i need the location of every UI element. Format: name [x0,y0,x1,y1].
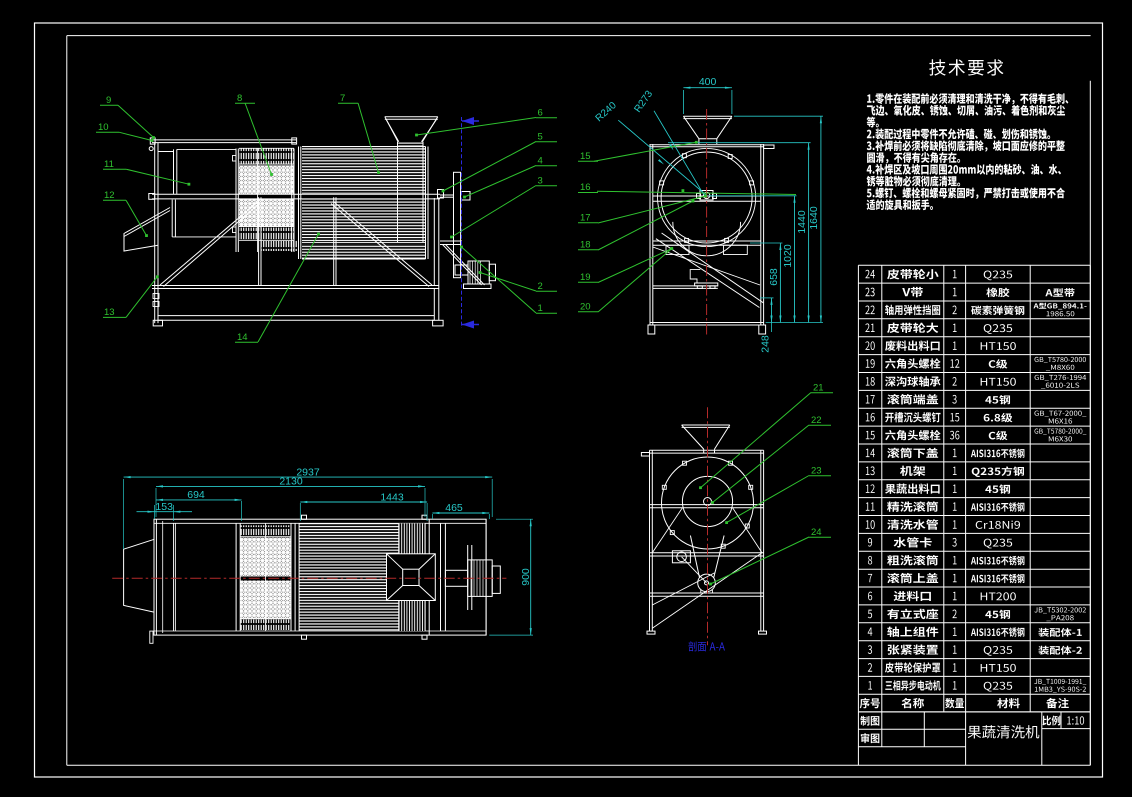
svg-text:3: 3 [538,176,543,187]
svg-text:153: 153 [155,501,173,513]
svg-text:21: 21 [813,383,824,394]
svg-text:8: 8 [237,93,242,104]
svg-text:20: 20 [580,302,591,313]
svg-text:465: 465 [445,502,463,514]
svg-text:5: 5 [538,132,543,143]
svg-text:1440: 1440 [796,210,808,234]
svg-text:400: 400 [699,76,717,88]
svg-text:15: 15 [580,151,591,162]
svg-text:18: 18 [580,240,591,251]
svg-text:1640: 1640 [808,206,820,230]
svg-text:14: 14 [237,332,248,343]
svg-text:2130: 2130 [279,476,303,488]
svg-text:4: 4 [538,156,543,167]
svg-text:13: 13 [104,307,115,318]
svg-text:2: 2 [538,281,543,292]
svg-text:7: 7 [340,93,345,104]
svg-text:11: 11 [104,159,114,170]
svg-text:658: 658 [768,268,780,286]
svg-text:1443: 1443 [380,491,404,503]
svg-text:12: 12 [104,190,115,201]
svg-text:694: 694 [187,489,205,501]
svg-text:9: 9 [106,95,111,106]
svg-text:24: 24 [811,527,822,538]
svg-text:10: 10 [98,122,109,133]
svg-text:22: 22 [811,415,822,426]
svg-text:19: 19 [580,272,591,283]
svg-text:1020: 1020 [782,244,794,268]
svg-text:16: 16 [580,182,591,193]
svg-text:248: 248 [760,335,772,353]
svg-text:17: 17 [580,213,591,224]
svg-text:900: 900 [520,568,532,586]
svg-text:23: 23 [811,466,822,477]
svg-text:1: 1 [538,303,543,314]
svg-text:6: 6 [538,108,543,119]
